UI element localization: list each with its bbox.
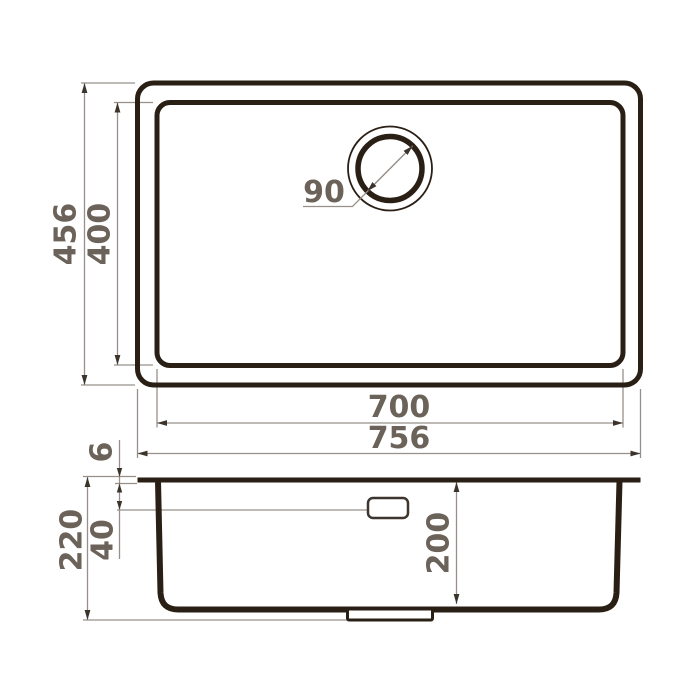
dim-label-ledge-offset: 40 [86,519,121,561]
dim-label-bowl-width: 700 [368,390,431,425]
technical-drawing-canvas: 456 400 700 756 220 [0,0,700,700]
dim-label-overall-width: 756 [368,421,431,456]
dim-label-overall-depth: 456 [49,203,84,266]
diameter-arrow-line [367,146,412,191]
dim-rim-and-ledge: 6 40 [85,440,138,561]
top-view: 90 [138,83,641,385]
side-view [138,480,641,620]
drain-recess [348,609,433,620]
sink-outer-rim-outline [138,83,641,385]
dim-label-bowl-depth: 400 [83,203,118,266]
arrowhead-down [117,501,122,510]
sink-bowl-outline [157,103,623,366]
sink-dimension-drawing: 456 400 700 756 220 [0,0,700,700]
dim-label-drain-diameter: 90 [303,175,345,210]
dim-label-overall-height: 220 [55,509,90,572]
dim-label-bowl-height: 200 [422,512,457,575]
dim-bowl-depth: 400 [83,103,154,366]
overflow-opening [368,498,408,518]
dim-label-rim-thickness: 6 [85,442,120,463]
dim-bowl-height: 200 [422,482,457,604]
dim-bowl-width: 700 [157,369,623,428]
arrowhead-up [117,484,122,493]
arrowhead-down [117,468,122,477]
